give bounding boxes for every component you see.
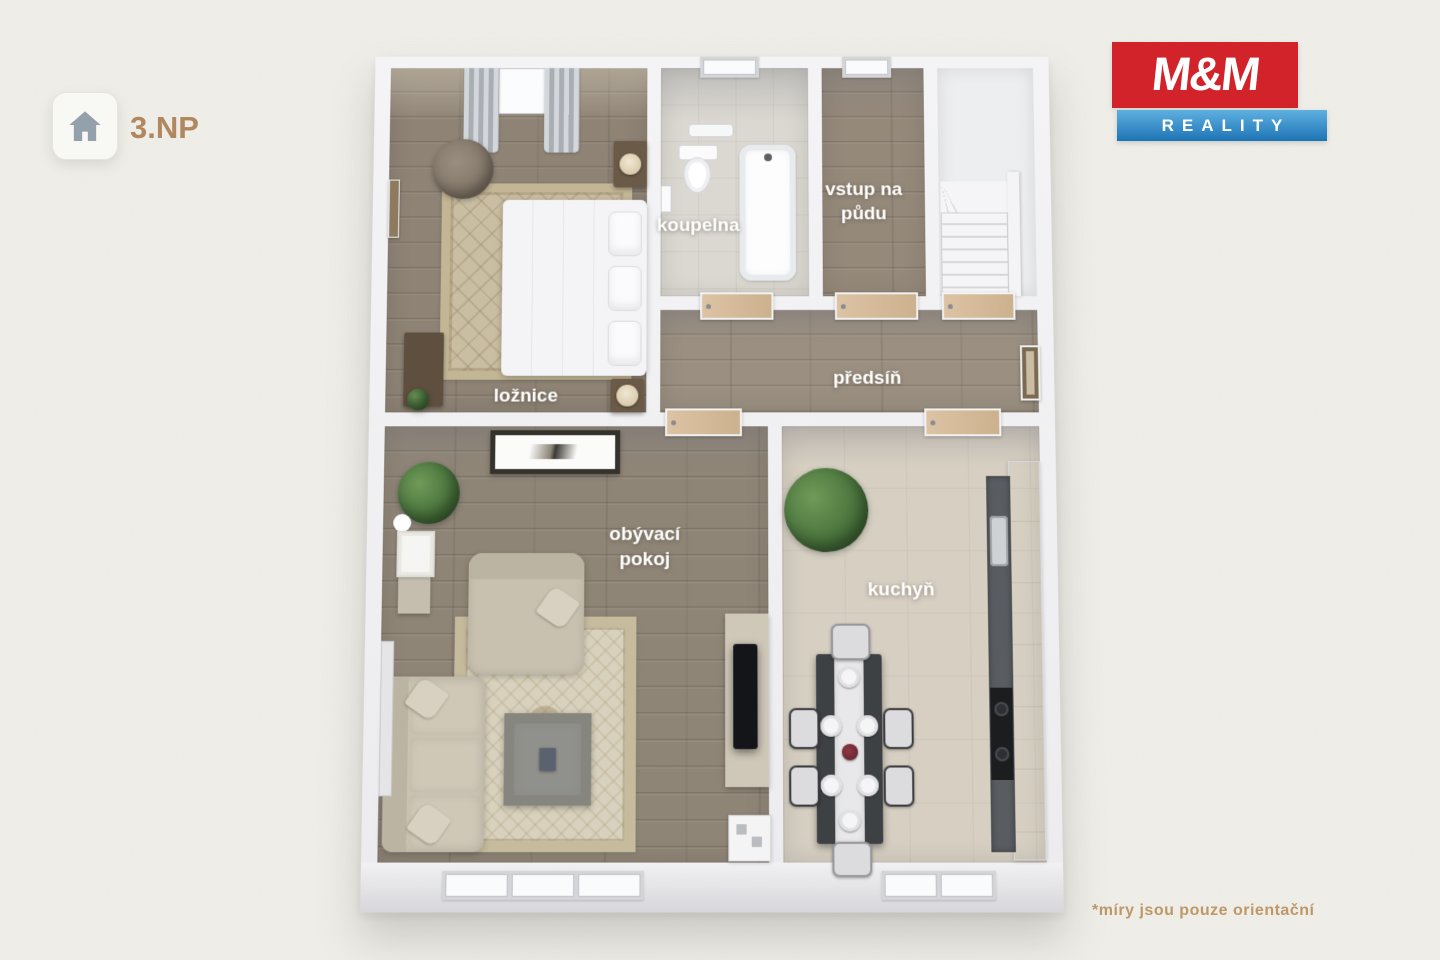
window-pane: [512, 874, 575, 897]
wall-mirror: [388, 180, 400, 238]
room-kitchen: [782, 426, 1047, 862]
window-living: [442, 871, 643, 900]
room-bathroom: [660, 68, 809, 296]
toilet: [679, 145, 716, 193]
stair-winders: [940, 182, 1007, 215]
dining-chair: [832, 842, 872, 877]
home-icon: [65, 106, 105, 146]
bed-duvet: [501, 200, 598, 376]
sofa: [382, 676, 486, 852]
mm-reality-logo: M&M REALITY: [1112, 42, 1327, 141]
burner: [994, 702, 1008, 716]
room-label-loznice: ložnice: [494, 384, 558, 408]
armchair-pillow: [535, 585, 580, 630]
window-pane: [885, 874, 937, 897]
bed-pillow: [608, 212, 642, 257]
burner: [995, 747, 1009, 761]
dining-chair: [831, 624, 871, 661]
living-wall-art: [490, 430, 620, 474]
plate: [857, 775, 879, 797]
room-label-predsin: předsíň: [833, 367, 901, 391]
nightstand-bottom: [610, 379, 644, 413]
hallway-picture-mat: [1026, 351, 1035, 394]
room-label-vstup: vstup na půdu: [814, 179, 913, 227]
curtain-right: [544, 68, 580, 152]
room-hallway: [660, 310, 1039, 412]
leaning-picture: [378, 641, 394, 796]
logo-title-block: M&M: [1112, 42, 1298, 108]
window-bathroom: [700, 57, 759, 78]
room-living: [377, 426, 769, 862]
armchair-back: [469, 553, 585, 579]
disclaimer-note: *míry jsou pouze orientační: [1092, 902, 1314, 920]
floor-label: 3.NP: [130, 110, 199, 146]
door-bathroom: [700, 292, 773, 319]
nightstand-top: [614, 141, 648, 187]
plate: [820, 715, 841, 736]
dining-chair: [789, 765, 820, 806]
door-attic: [835, 292, 918, 319]
living-armchair: [467, 553, 584, 674]
kitchen-sink: [990, 516, 1009, 566]
floorplan-page: 3.NP M&M REALITY *míry jsou pouze orient…: [0, 0, 1440, 960]
logo-subtitle-block: REALITY: [1117, 110, 1327, 141]
cooktop: [990, 688, 1014, 780]
coffee-table: [503, 713, 591, 805]
bathroom-sink: [661, 185, 672, 212]
room-label-obyvaci: obývací pokoj: [589, 523, 700, 573]
logo-title: M&M: [1149, 46, 1261, 101]
bedroom-window: [498, 68, 547, 114]
logo-subtitle: REALITY: [1154, 116, 1291, 136]
room-staircase: [937, 68, 1037, 296]
radiator: [688, 124, 733, 137]
stairs: [941, 212, 1009, 296]
window-attic: [842, 57, 891, 78]
cabinet-item: [752, 837, 762, 847]
plate: [838, 666, 859, 687]
room-label-kuchyn: kuchyň: [868, 578, 935, 603]
door-kitchen: [924, 408, 1001, 436]
dresser-plant: [407, 389, 429, 411]
window-pane: [845, 60, 888, 75]
plate: [839, 810, 861, 832]
plate: [821, 775, 842, 797]
tv: [733, 644, 757, 749]
art-strokes: [513, 444, 597, 459]
door-living: [665, 408, 742, 436]
bed-pillow: [608, 266, 642, 311]
living-cabinet: [728, 815, 771, 862]
room-label-koupelna: koupelna: [657, 214, 739, 238]
floorplan: ložnice koupelna vstup na půdu předsíň o…: [360, 57, 1064, 913]
window-pane: [578, 874, 640, 897]
bed-pillow: [608, 321, 642, 366]
window-kitchen: [881, 871, 996, 900]
bathtub: [740, 145, 797, 281]
dining-table: [816, 654, 883, 844]
dining-chair: [789, 708, 820, 749]
dining-chair: [884, 765, 915, 806]
table-flowers: [842, 744, 858, 760]
window-pane: [445, 874, 508, 897]
cabinet-item: [736, 824, 746, 834]
window-pane: [703, 60, 756, 75]
window-pane: [941, 874, 993, 897]
bed: [501, 200, 647, 376]
table-lamp: [396, 531, 435, 577]
room-bedroom: [385, 68, 647, 412]
door-staircase: [942, 292, 1016, 319]
kitchen-plant: [784, 468, 869, 552]
plate: [857, 715, 878, 736]
floor-badge: [52, 92, 118, 160]
stairwell-wall: [1007, 172, 1021, 296]
living-plant-pot: [393, 514, 411, 532]
sofa-cushion: [409, 738, 481, 792]
dining-chair: [883, 708, 914, 749]
hallway-picture: [1020, 345, 1041, 400]
toilet-bowl: [683, 157, 711, 193]
